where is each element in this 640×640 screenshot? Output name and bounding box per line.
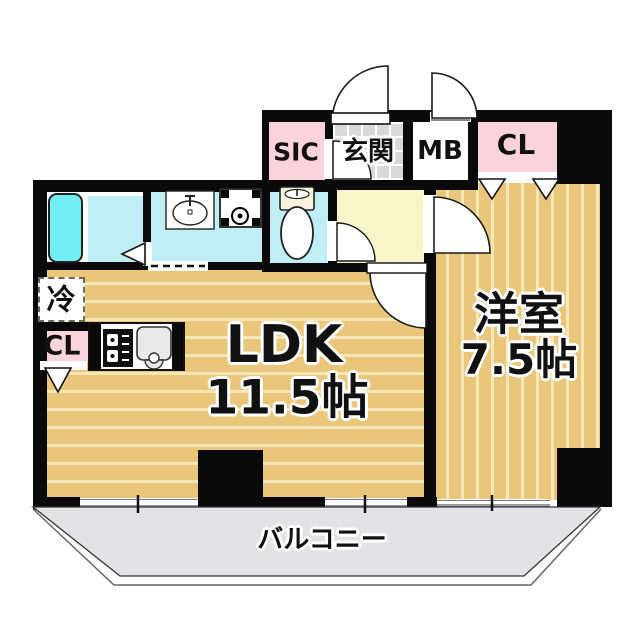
- mb-door-swing: [432, 73, 477, 118]
- genkan-label: 玄関: [342, 139, 394, 165]
- closet-door-mark: [533, 179, 559, 199]
- bath-door-mark: [122, 243, 145, 265]
- washbasin: [166, 191, 214, 229]
- toilet-door-swing: [337, 223, 375, 261]
- closet-left-label: CL: [43, 333, 80, 360]
- kitchen-sink: [137, 327, 171, 369]
- closet-top-label: CL: [497, 131, 535, 159]
- bathtub: [49, 194, 82, 262]
- ldk-size-label: 11.5帖: [206, 375, 369, 422]
- entrance-door-leaf: [331, 113, 390, 124]
- dashed-boundary: [148, 261, 208, 271]
- closet-door-mark: [479, 179, 505, 199]
- fridge-label: 冷: [46, 286, 75, 315]
- floor-plan: SIC 玄関 MB CL CL 冷 LDK 11.5帖 洋室 7.5帖 バルコニ…: [0, 0, 640, 640]
- balcony-label: バルコニー: [257, 527, 386, 553]
- toilet: [280, 187, 314, 259]
- western-door-swing: [434, 197, 490, 253]
- washing-machine-pan: [220, 189, 261, 227]
- closet-door-mark: [45, 368, 71, 392]
- ldk-door-swing: [370, 272, 426, 328]
- stove: [103, 329, 133, 367]
- sic-label: SIC: [273, 140, 319, 165]
- western-room-label: 洋室: [474, 292, 564, 337]
- western-size-label: 7.5帖: [461, 339, 577, 381]
- ldk-door-leaf: [367, 263, 427, 273]
- ldk-label: LDK: [226, 319, 343, 371]
- mb-label: MB: [417, 138, 463, 164]
